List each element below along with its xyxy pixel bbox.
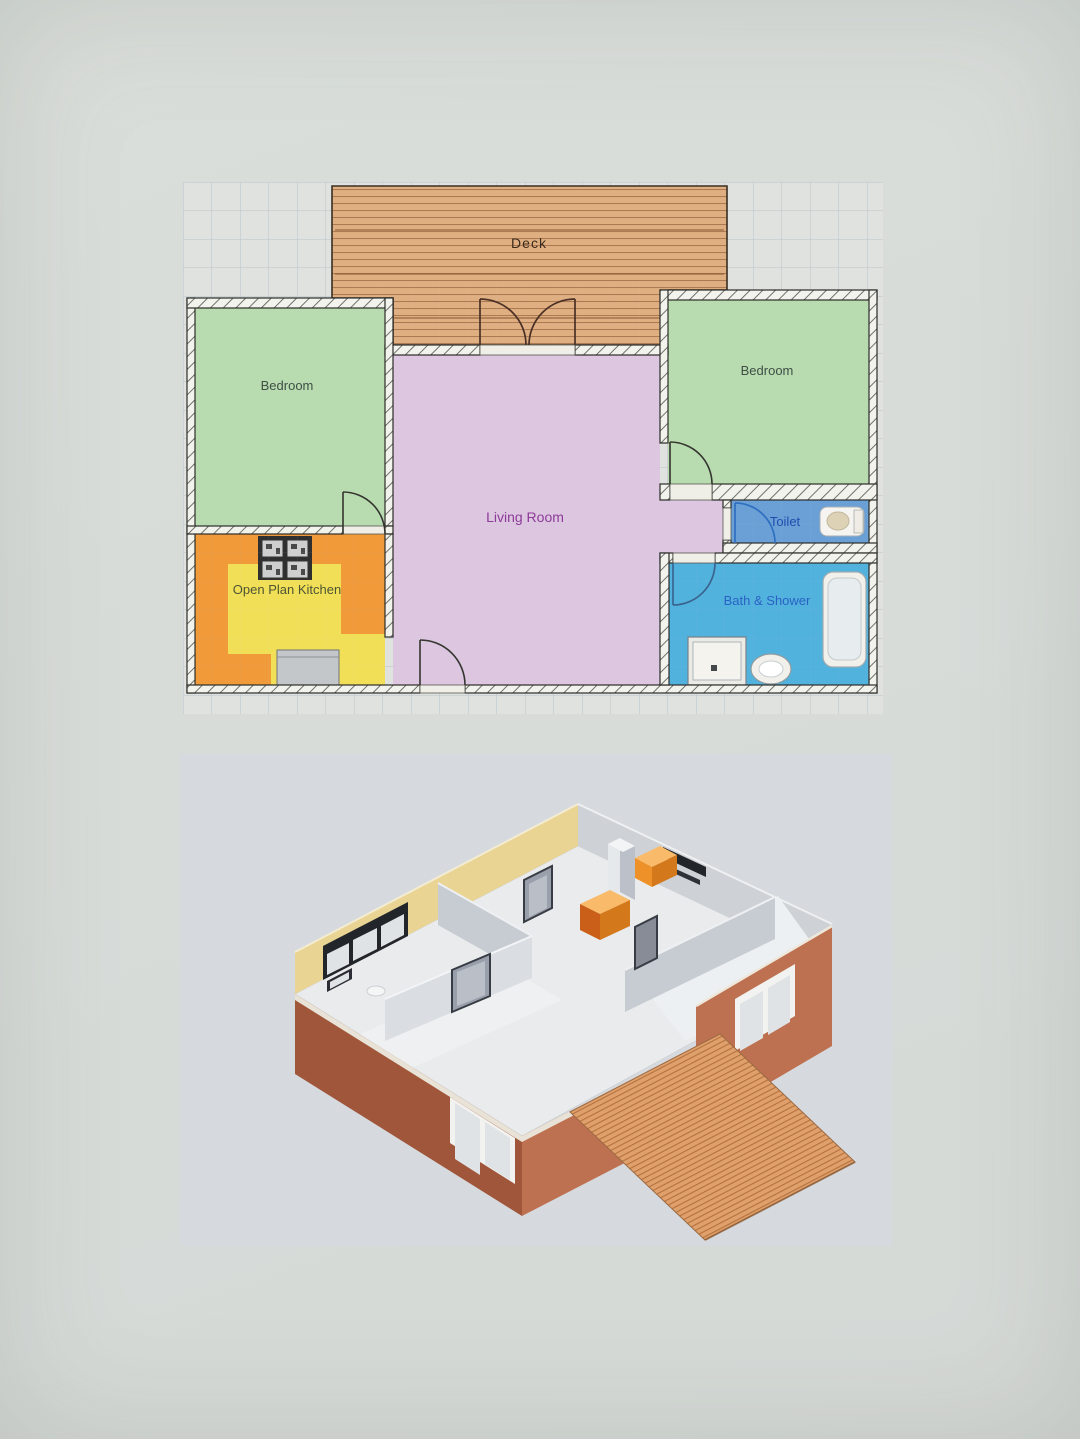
render-3d-isometric [180,754,892,1246]
wall-kitchen-living [385,534,393,637]
wall-bedr-bottom-b [712,484,877,500]
wall-bedl-bottom-right [385,526,393,534]
toilet-label: Toilet [770,514,801,529]
wall-left [187,298,195,693]
wall-bedl-top [187,298,393,308]
shower-icon [688,637,746,685]
wall-bedl-right [385,298,393,526]
living-room-label: Living Room [486,509,564,525]
wall-toilet-bottom [723,543,877,553]
toilet-fixture-icon [820,507,864,536]
bathtub-icon [823,572,866,667]
wall-bath-left [660,553,669,685]
wall-bottom-left [187,685,420,693]
sink-3d-icon [367,986,385,996]
wall-bedl-bottom-left [187,526,343,534]
photographed-document-page: Deck [0,0,1080,1439]
floor-plan-2d: Deck [183,182,883,714]
bath-sink-icon [751,654,791,684]
wall-bath-top-b [715,553,877,563]
bath-shower-label: Bath & Shower [724,593,811,608]
wall-bedr-top [660,290,877,300]
wall-living-top-right [575,345,668,355]
threshold-toilet-door [723,508,731,540]
tall-cabinet-icon [608,838,635,900]
threshold-french-doors [480,345,575,355]
wall-toilet-left-a [723,500,731,508]
threshold-bath-door [673,553,715,563]
bedroom-left-label: Bedroom [261,378,314,393]
deck-label: Deck [511,235,547,251]
wall-bedr-left [660,290,668,443]
threshold-bedr-door [670,484,712,500]
wall-bedr-bottom-a [660,484,670,500]
wall-bottom-right [465,685,877,693]
threshold-bedl-door [343,526,385,534]
render-3d-drawing [180,754,892,1246]
wall-living-top-left [385,345,480,355]
floor-plan-drawing: Deck [183,182,883,714]
threshold-front-door [420,685,465,693]
bedroom-right-label: Bedroom [741,363,794,378]
